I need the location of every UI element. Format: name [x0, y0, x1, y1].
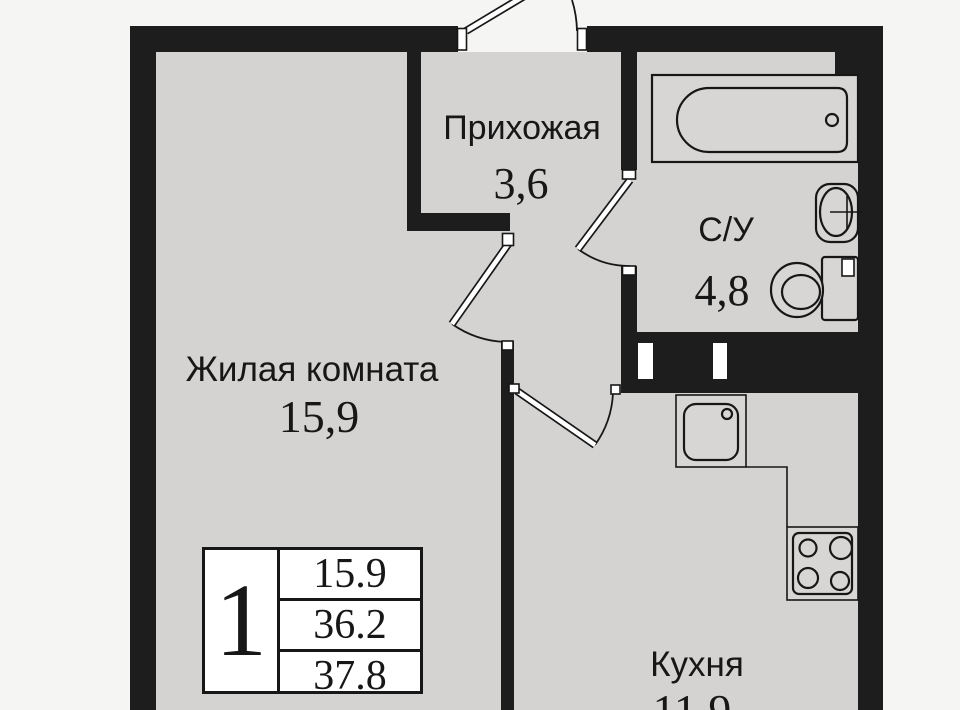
vent-slot-left	[638, 343, 653, 379]
room-area-bathroom: 4,8	[695, 266, 750, 315]
vent-shaft	[621, 332, 858, 393]
kitchen-door-jamb-right	[611, 385, 620, 394]
wall-right	[858, 26, 883, 710]
kitchen-door-jamb-left	[509, 384, 519, 393]
room-area-living: 15,9	[279, 391, 360, 442]
entrance-jamb-left	[458, 29, 467, 51]
wall-bathroom-lower	[621, 266, 637, 332]
living-door-jamb-top	[503, 234, 514, 246]
wall-bathroom-upper	[621, 50, 637, 170]
room-label-hallway: Прихожая	[443, 109, 601, 147]
total-area-value: 37.8	[280, 649, 420, 700]
kitchen-sink-icon	[676, 395, 746, 467]
living-door-jamb-bottom	[502, 341, 513, 350]
floor-plan: Жилая комната 15,9 Прихожая 3,6 С/У 4,8 …	[0, 0, 960, 710]
apartment-info-table: 1 15.9 36.2 37.8	[202, 547, 423, 694]
wall-hallway-left	[407, 52, 421, 213]
apartment-area-value: 36.2	[280, 598, 420, 649]
toilet-flush-button	[842, 259, 854, 276]
wall-living-kitchen	[501, 341, 514, 710]
room-area-kitchen: 11,9	[653, 685, 732, 710]
room-label-kitchen: Кухня	[650, 645, 744, 684]
bathtub-icon	[652, 75, 858, 162]
entrance-door-arc	[572, 0, 577, 31]
room-area-hallway: 3,6	[494, 159, 549, 208]
wall-left	[130, 26, 156, 710]
entrance-jamb-right	[578, 29, 587, 51]
stove-icon	[787, 527, 858, 600]
wall-corner-pilaster	[835, 26, 883, 76]
floor-plan-drawing: Жилая комната 15,9 Прихожая 3,6 С/У 4,8 …	[0, 0, 960, 710]
area-values: 15.9 36.2 37.8	[280, 550, 420, 691]
room-label-bathroom: С/У	[698, 211, 754, 249]
rooms-count: 1	[205, 550, 280, 691]
living-area-value: 15.9	[280, 550, 420, 598]
bathroom-door-jamb-bottom	[623, 266, 636, 275]
wall-top-left	[130, 26, 458, 52]
room-label-living: Жилая комната	[186, 350, 439, 389]
bathroom-sink-icon	[816, 184, 862, 242]
entrance-door	[458, 0, 587, 50]
vent-slot-right	[713, 343, 727, 379]
wall-hallway-bottom	[407, 213, 510, 231]
bathroom-door-jamb-top	[623, 170, 636, 179]
